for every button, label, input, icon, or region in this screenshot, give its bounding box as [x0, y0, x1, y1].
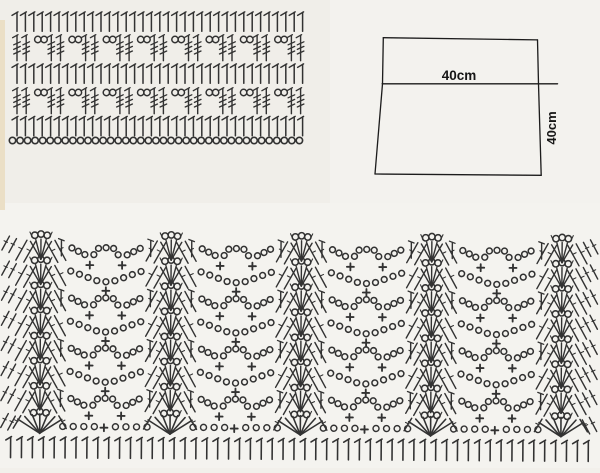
svg-text:40cm: 40cm	[544, 111, 559, 144]
svg-text:40cm: 40cm	[442, 68, 477, 83]
